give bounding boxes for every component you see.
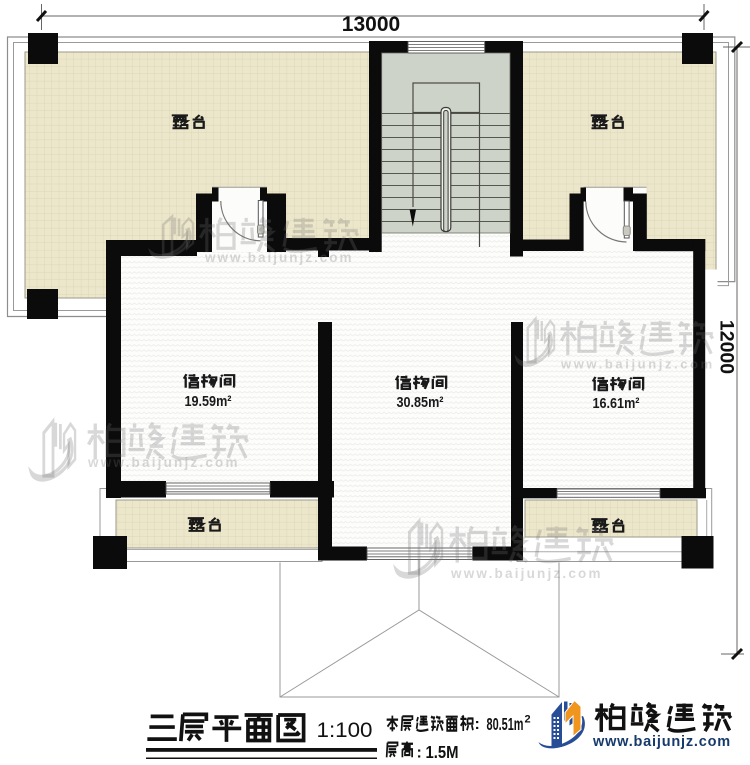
svg-text:13000: 13000 xyxy=(342,13,400,36)
svg-text:19.59m²: 19.59m² xyxy=(185,393,232,410)
svg-text:www.baijunjz.com: www.baijunjz.com xyxy=(87,455,240,470)
svg-text:www.baijunjz.com: www.baijunjz.com xyxy=(560,357,715,372)
svg-text:2: 2 xyxy=(525,714,531,726)
svg-text:1:100: 1:100 xyxy=(317,719,373,742)
svg-text:1.5M: 1.5M xyxy=(426,742,459,762)
svg-text:80.51m: 80.51m xyxy=(487,714,524,734)
svg-text:www.baijunjz.com: www.baijunjz.com xyxy=(592,734,731,750)
svg-text:16.61m²: 16.61m² xyxy=(593,395,640,412)
svg-text::: : xyxy=(475,716,480,733)
svg-text:www.baijunjz.com: www.baijunjz.com xyxy=(204,250,354,265)
svg-text:www.baijunjz.com: www.baijunjz.com xyxy=(450,566,603,581)
svg-text:30.85m²: 30.85m² xyxy=(397,394,444,411)
svg-text:12000: 12000 xyxy=(716,320,738,374)
svg-text::: : xyxy=(417,745,422,762)
